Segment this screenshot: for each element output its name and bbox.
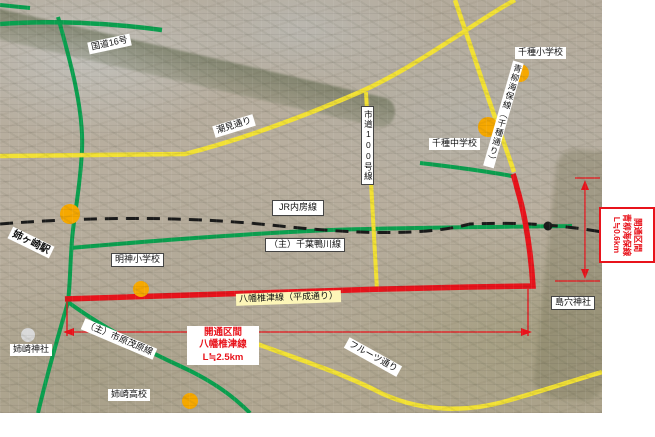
school-dot-myojin: [133, 281, 149, 297]
annotation-line: 開通区間: [632, 209, 643, 261]
annotation-line: L≒2.5km: [190, 352, 256, 364]
label-shido-100: 市道100号線: [361, 106, 374, 185]
label-shimaana-shrine: 島穴神社: [551, 296, 595, 310]
annotation-line: 青柳海保線: [622, 209, 633, 261]
road-yawata-shiizu-opened-line: [65, 174, 533, 299]
station-dot-anegasaki: [60, 204, 80, 224]
school-dot-anesaki-hs: [182, 393, 198, 409]
railway-point-dot: [544, 222, 553, 231]
arrowhead-bottom: [581, 269, 589, 279]
road-green-east-spur: [420, 163, 512, 176]
shrine-dot-anesaki: [21, 328, 35, 342]
arrowhead-top: [581, 180, 589, 190]
road-route16-line: [0, 22, 162, 30]
label-chiba-kamogawa: （主）千葉鴨川線: [265, 238, 345, 252]
annotation-opened-section-sub: 開通区間 青柳海保線 L≒0.6km: [599, 207, 655, 263]
label-anesaki-shrine: 姉崎神社: [10, 344, 52, 356]
annotation-line: 開通区間: [190, 327, 256, 339]
arrowhead-right: [521, 328, 532, 336]
annotation-line: L≒0.6km: [611, 209, 622, 261]
annotation-opened-section-main: 開通区間 八幡椎津線 L≒2.5km: [187, 326, 259, 365]
label-jr-uchibo-line: JR内房線: [272, 200, 324, 216]
road-fruits-dori-line: [252, 342, 602, 409]
arrowhead-left: [63, 328, 74, 336]
label-myojin-elementary: 明神小学校: [111, 253, 164, 267]
annotation-line: 八幡椎津線: [190, 339, 256, 351]
label-chigusa-junior-high: 千種中学校: [429, 138, 480, 150]
road-green-southwest-branch: [38, 302, 68, 413]
aerial-map: 国道16号 潮見通り JR内房線 市道100号線 （主）千葉鴨川線 （主）市原茂…: [0, 0, 602, 413]
label-anesaki-high-school: 姉崎高校: [108, 389, 150, 401]
road-green-west-line: [58, 17, 82, 302]
road-green-topleft-stub: [0, 5, 30, 8]
label-chigusa-elementary: 千種小学校: [515, 47, 566, 59]
map-screenshot: 国道16号 潮見通り JR内房線 市道100号線 （主）千葉鴨川線 （主）市原茂…: [0, 0, 655, 437]
